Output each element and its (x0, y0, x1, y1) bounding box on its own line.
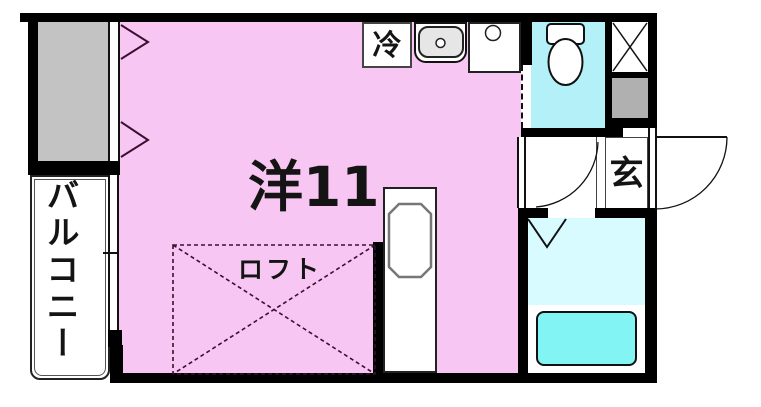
floorplan-canvas: 玄 冷 (0, 0, 761, 407)
balcony-window (108, 175, 119, 330)
refrigerator-space: 冷 (362, 22, 412, 68)
wall-shaft-divider (612, 72, 648, 78)
closet (38, 22, 108, 161)
wall-left-upper (28, 13, 38, 175)
entrance-door-arc-icon (655, 137, 727, 209)
wall-main-right (518, 208, 528, 383)
wall-toilet-bottom (521, 128, 605, 137)
bathroom-floor (528, 218, 645, 305)
balcony-label: バルコニー (44, 178, 77, 396)
kitchen-open-boundary (521, 65, 531, 128)
sliding-door (517, 137, 526, 208)
pipe-shaft-box (612, 22, 648, 72)
toilet-room-floor (531, 22, 605, 128)
corridor-floor (531, 137, 597, 210)
wall-kitchen-right (521, 13, 532, 65)
bathtub (536, 311, 637, 366)
entrance-doorway-jamb (648, 128, 657, 210)
meter-box (612, 77, 648, 118)
wall-bath-top-left (518, 208, 548, 218)
wall-top (20, 13, 657, 22)
washing-machine-space (383, 187, 437, 373)
wall-right-upper (648, 13, 657, 128)
wall-washer-left (373, 242, 383, 383)
wall-entrance-stub (605, 128, 623, 137)
wall-bottom (110, 373, 657, 383)
loft-label: ロフト (238, 257, 322, 282)
wall-right-lower (645, 218, 657, 383)
closet-door-track (108, 22, 120, 161)
kitchen-sink-unit (414, 22, 467, 63)
wall-bath-top-right (595, 208, 657, 218)
wall-closet-bottom (28, 161, 120, 175)
stove-unit (468, 22, 521, 73)
entrance-floor: 玄 (605, 137, 648, 210)
entrance-label: 玄 (610, 157, 644, 191)
wall-shaft-bottom (612, 118, 648, 128)
wall-shaft-left (605, 22, 612, 128)
main-room-label: 洋11 (248, 160, 380, 215)
refrigerator-label: 冷 (372, 31, 401, 60)
